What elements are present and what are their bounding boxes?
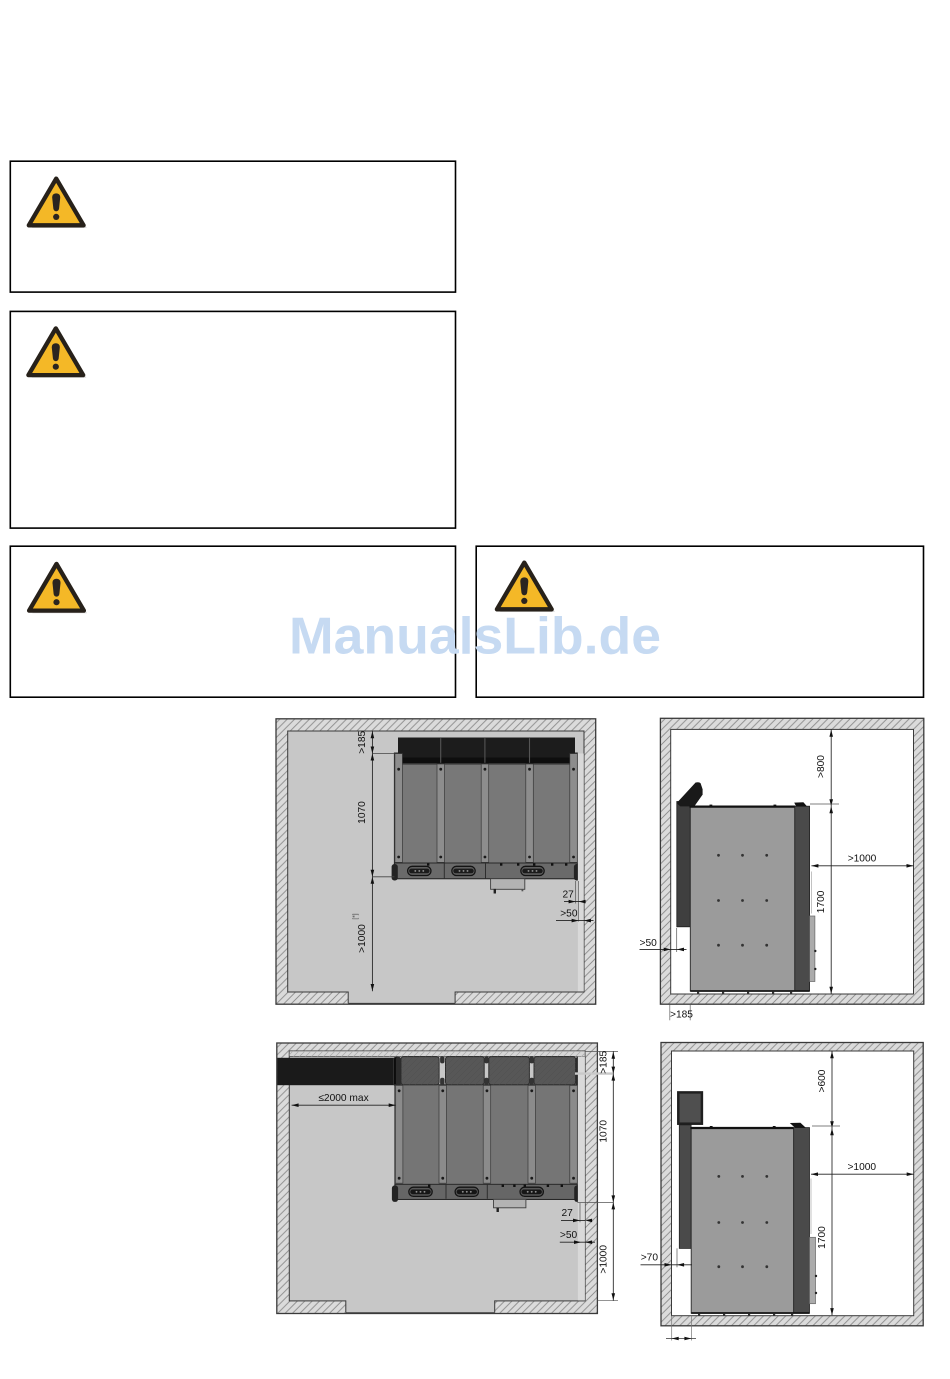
svg-text:≤2000 max: ≤2000 max	[318, 1093, 368, 1104]
svg-text:>1000: >1000	[847, 1162, 876, 1173]
svg-text:1700: 1700	[817, 1226, 828, 1249]
svg-text:1700: 1700	[816, 890, 827, 913]
svg-text:>800: >800	[816, 755, 827, 778]
svg-text:27: 27	[561, 1208, 573, 1219]
svg-text:>185: >185	[357, 730, 368, 753]
svg-text:>50: >50	[560, 1230, 578, 1241]
svg-text:ManualsLib.de: ManualsLib.de	[289, 608, 661, 666]
svg-text:27: 27	[562, 889, 574, 900]
svg-text:>185: >185	[598, 1050, 609, 1073]
svg-text:>1000: >1000	[598, 1245, 609, 1274]
svg-text:>50: >50	[640, 938, 658, 949]
svg-text:[*]: [*]	[352, 913, 359, 919]
svg-text:>70: >70	[641, 1252, 659, 1263]
svg-text:>1000: >1000	[848, 853, 877, 864]
svg-text:1070: 1070	[598, 1120, 609, 1143]
svg-text:1070: 1070	[357, 801, 368, 824]
svg-text:>1000: >1000	[357, 924, 368, 953]
svg-text:>600: >600	[817, 1069, 828, 1092]
svg-text:>185: >185	[670, 1010, 693, 1021]
svg-text:>50: >50	[560, 908, 578, 919]
